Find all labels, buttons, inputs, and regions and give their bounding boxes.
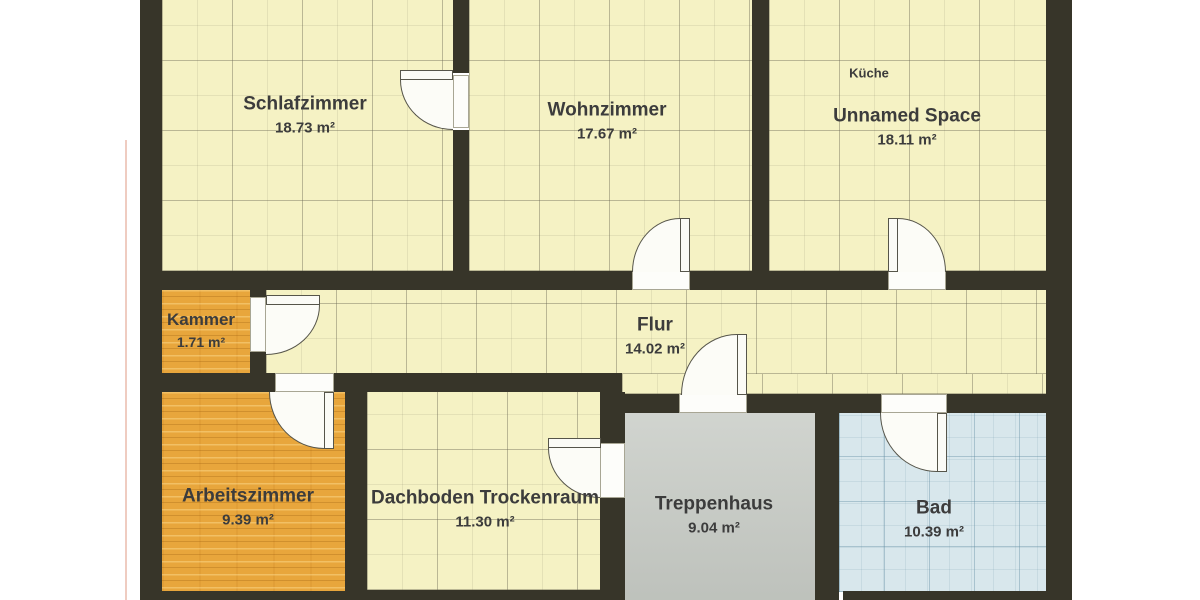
room-name: Wohnzimmer bbox=[548, 99, 667, 121]
room-name: Schlafzimmer bbox=[243, 93, 367, 115]
room-name: Kammer bbox=[167, 310, 235, 330]
wall-bottom-under-bad bbox=[843, 591, 1046, 600]
label-dachboden: Dachboden Trockenraum 11.30 m² bbox=[371, 487, 599, 530]
door-opening-kueche bbox=[888, 271, 946, 290]
room-name: Flur bbox=[625, 314, 685, 336]
scan-artifact-line bbox=[125, 140, 127, 600]
label-schlafzimmer: Schlafzimmer 18.73 m² bbox=[243, 93, 367, 136]
label-treppenhaus: Treppenhaus 9.04 m² bbox=[655, 493, 773, 536]
room-area: 18.11 m² bbox=[833, 131, 981, 148]
label-kueche-tag: Küche bbox=[849, 66, 889, 81]
room-area: 10.39 m² bbox=[904, 523, 964, 540]
label-wohnzimmer: Wohnzimmer 17.67 m² bbox=[548, 99, 667, 142]
wall-schlafzimmer-wohnzimmer-upper bbox=[453, 0, 469, 73]
wall-outer-right bbox=[1046, 0, 1072, 600]
room-name: Treppenhaus bbox=[655, 493, 773, 515]
room-area: 18.73 m² bbox=[243, 119, 367, 136]
room-area: 17.67 m² bbox=[548, 125, 667, 142]
wall-schlafzimmer-wohnzimmer-lower bbox=[453, 130, 469, 271]
door-opening-schlafzimmer bbox=[453, 75, 469, 128]
room-name: Unnamed Space bbox=[833, 105, 981, 127]
door-opening-bad bbox=[881, 394, 947, 413]
wall-bottom-under-dachboden bbox=[367, 590, 600, 600]
label-bad: Bad 10.39 m² bbox=[904, 497, 964, 540]
label-kammer: Kammer 1.71 m² bbox=[167, 310, 235, 350]
door-opening-wohnzimmer bbox=[632, 271, 690, 290]
room-area: 1.71 m² bbox=[167, 334, 235, 350]
room-area: 11.30 m² bbox=[371, 513, 599, 530]
door-leaf-arbeitszimmer bbox=[324, 392, 334, 449]
wall-bottom-under-arbeitszimmer bbox=[140, 591, 345, 600]
wall-treppenhaus-bad bbox=[815, 413, 839, 600]
door-leaf-dachboden bbox=[548, 438, 601, 448]
room-area: 14.02 m² bbox=[625, 340, 685, 357]
label-arbeitszimmer: Arbeitszimmer 9.39 m² bbox=[182, 485, 314, 528]
door-opening-arbeitszimmer bbox=[275, 373, 334, 392]
door-opening-dachboden bbox=[600, 443, 625, 498]
wall-wohnzimmer-kueche bbox=[752, 0, 769, 271]
door-opening-treppenhaus bbox=[679, 394, 747, 413]
door-leaf-wohnzimmer bbox=[680, 218, 690, 272]
door-leaf-treppenhaus bbox=[737, 334, 747, 395]
wall-arbeitszimmer-dachboden bbox=[345, 392, 367, 600]
label-kueche: Unnamed Space 18.11 m² bbox=[833, 105, 981, 148]
door-leaf-bad bbox=[937, 413, 947, 472]
door-leaf-kueche bbox=[888, 218, 898, 272]
room-name: Arbeitszimmer bbox=[182, 485, 314, 507]
wall-outer-left bbox=[140, 0, 162, 600]
wall-flur-bottom-left bbox=[140, 373, 622, 392]
floorplan-canvas: Schlafzimmer 18.73 m² Wohnzimmer 17.67 m… bbox=[0, 0, 1200, 600]
door-opening-kammer bbox=[250, 297, 266, 352]
label-flur: Flur 14.02 m² bbox=[625, 314, 685, 357]
door-leaf-schlafzimmer bbox=[400, 70, 453, 80]
room-name: Dachboden Trockenraum bbox=[371, 487, 599, 509]
room-area: 9.39 m² bbox=[182, 511, 314, 528]
room-name: Bad bbox=[904, 497, 964, 519]
room-area: 9.04 m² bbox=[655, 519, 773, 536]
door-leaf-kammer bbox=[266, 295, 320, 305]
